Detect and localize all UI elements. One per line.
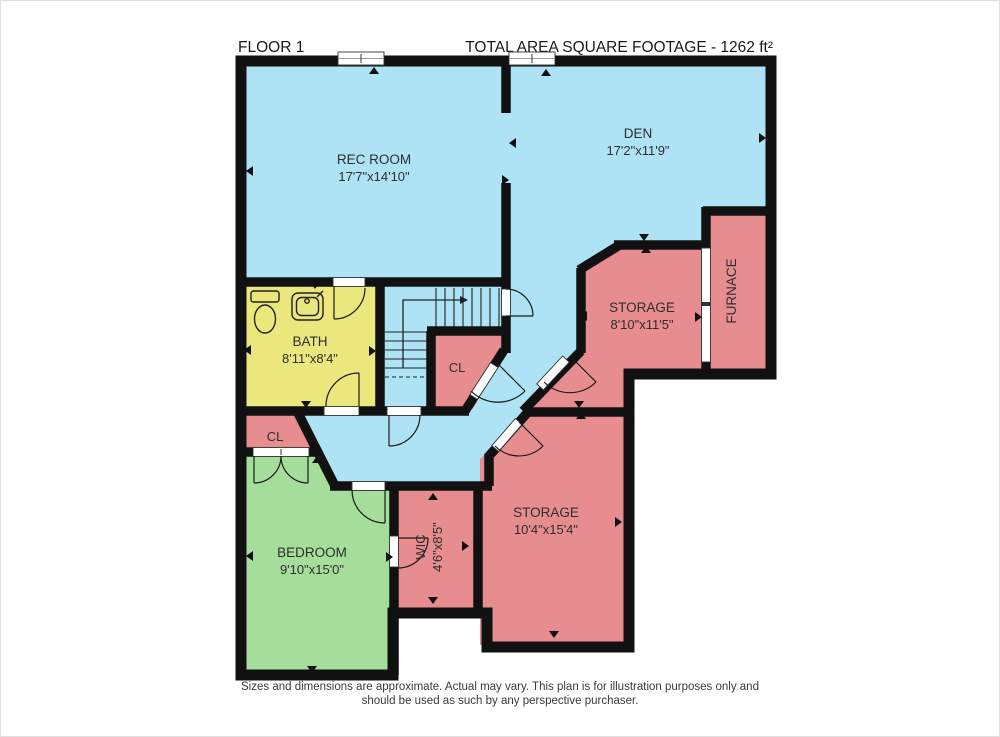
bath-label: BATH [292, 334, 327, 349]
disclaimer-line-1: Sizes and dimensions are approximate. Ac… [241, 681, 759, 693]
bath-top-door-opening [333, 278, 365, 287]
den-label: DEN [624, 126, 653, 141]
floor-plan-canvas: FLOOR 1 TOTAL AREA SQUARE FOOTAGE - 1262… [1, 1, 1000, 737]
storage-lower-dims: 10'4"x15'4" [514, 522, 578, 537]
window-rec-room [338, 52, 384, 65]
storage-lower-label: STORAGE [513, 505, 579, 520]
wic-label: WIC [413, 534, 428, 559]
wic-door-opening [390, 536, 399, 567]
floor-plan-page: FLOOR 1 TOTAL AREA SQUARE FOOTAGE - 1262… [0, 0, 1000, 737]
bath-dims: 8'11"x8'4" [282, 351, 338, 366]
den-dims: 17'2"x11'9" [606, 143, 669, 158]
storage-upper-dims: 8'10"x11'5" [610, 317, 673, 332]
wic-dims: 4'6"x8'5" [430, 522, 445, 572]
disclaimer-line-2: should be used as such by any perspectiv… [362, 695, 639, 707]
bath-bottom-door-opening [324, 407, 359, 416]
stairs-top-door-opening [502, 289, 511, 316]
bedroom-closet-opening [253, 448, 309, 457]
rec-room-label: REC ROOM [337, 152, 411, 167]
storage-upper-label: STORAGE [609, 300, 675, 315]
furnace-louver-opening [702, 248, 711, 362]
closet-bedroom-label: CL [267, 429, 284, 444]
bedroom-dims: 9'10"x15'0" [280, 562, 344, 577]
closet-hall-label: CL [449, 360, 466, 375]
floor-label: FLOOR 1 [238, 39, 304, 56]
furnace-label: FURNACE [724, 258, 739, 323]
rec-room-dims: 17'7"x14'10" [338, 169, 410, 184]
stairs-hall-door-opening [387, 407, 421, 416]
bedroom-label: BEDROOM [277, 545, 347, 560]
bedroom-door-opening [352, 482, 385, 491]
window-den [509, 52, 555, 65]
